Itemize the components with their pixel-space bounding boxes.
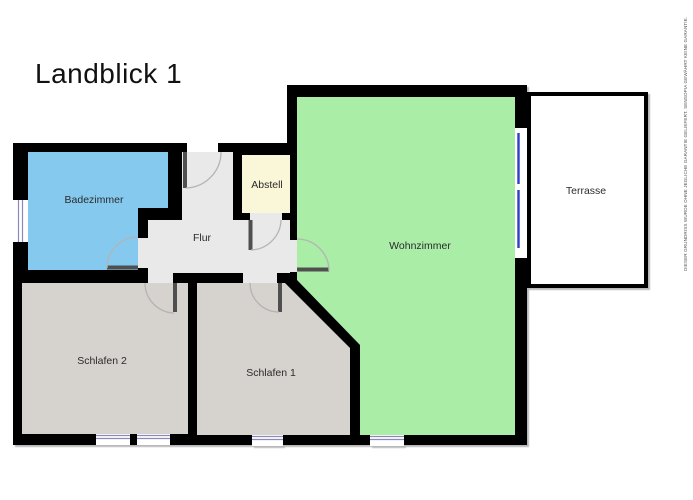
room-label-terrasse: Terrasse — [566, 185, 606, 197]
watermark-text: DIESER GRUNDRISS WURDE OHNE JEGLICHE GAR… — [683, 55, 693, 271]
floor-plan-page: Landblick 1 — [0, 0, 693, 500]
room-label-abstell: Abstell — [251, 179, 283, 191]
entrance-door-gap — [187, 143, 218, 152]
window-terrasse-wall — [515, 128, 527, 258]
room-label-badezimmer: Badezimmer — [65, 194, 124, 206]
room-label-schlafen1: Schlafen 1 — [246, 367, 296, 379]
room-label-wohnzimmer: Wohnzimmer — [389, 240, 451, 252]
floor-plan-svg: Badezimmer Flur Abstell Wohnzimmer Terra… — [0, 0, 693, 500]
window-badezimmer — [13, 200, 28, 242]
room-label-flur: Flur — [193, 232, 212, 244]
room-label-schlafen2: Schlafen 2 — [77, 355, 127, 367]
